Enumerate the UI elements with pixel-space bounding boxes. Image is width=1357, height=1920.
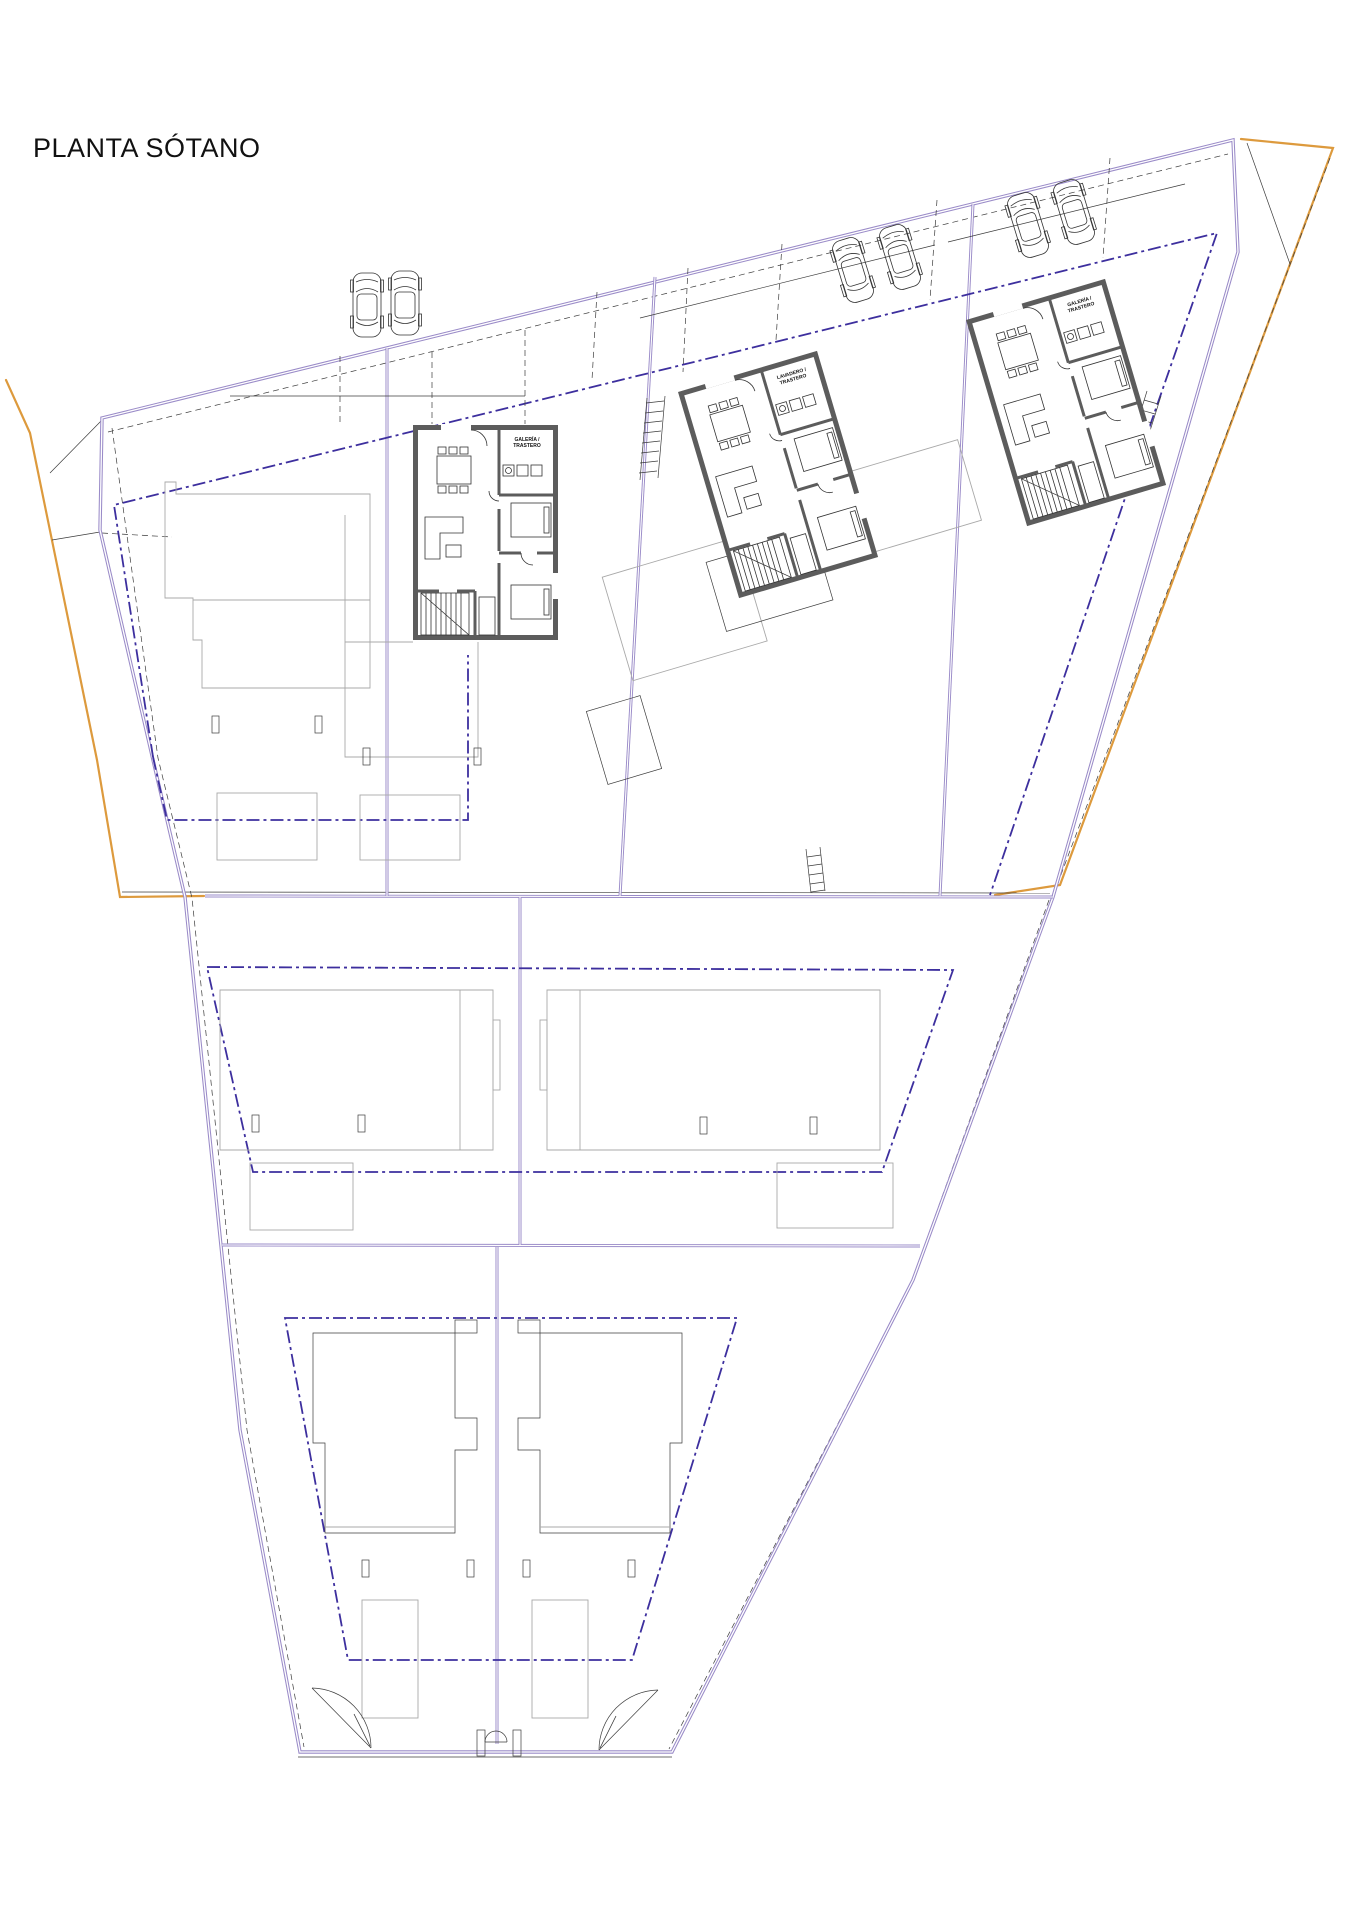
page-title: PLANTA SÓTANO — [33, 132, 261, 163]
footprint-lot-g — [313, 1333, 477, 1533]
unit-plan-middle: LAVADERO / TRASTERO — [680, 350, 878, 595]
lot-dividers — [205, 204, 1053, 1744]
pool-rectangle — [360, 795, 460, 860]
entrance-gates — [312, 1688, 658, 1756]
plan-sheet: GALERÍA / TRASTERO LAVADERO / TRASTERO G… — [0, 0, 1357, 1920]
pool-rectangle — [217, 793, 317, 860]
room-label: TRASTERO — [513, 443, 541, 449]
pool-rectangle — [362, 1600, 418, 1718]
footprint-lot-h — [518, 1333, 682, 1533]
footprint-lot-a — [165, 482, 370, 688]
footprint-lot-f — [547, 990, 880, 1150]
stair-hatch — [806, 847, 825, 893]
unit-plan-right: GALERÍA / TRASTERO — [968, 278, 1166, 523]
pool-rectangle — [586, 696, 661, 785]
footprint-lot-e — [220, 990, 493, 1150]
room-label: GALERÍA / — [514, 435, 540, 443]
pool-rectangle — [532, 1600, 588, 1718]
unit-plan-left: GALERÍA / TRASTERO — [416, 424, 560, 638]
pools — [217, 531, 893, 1718]
floor-plan-canvas: GALERÍA / TRASTERO LAVADERO / TRASTERO G… — [0, 0, 1357, 1920]
column-markers — [212, 716, 817, 1577]
pool-rectangle — [250, 1163, 353, 1230]
building-footprints — [165, 440, 981, 1533]
